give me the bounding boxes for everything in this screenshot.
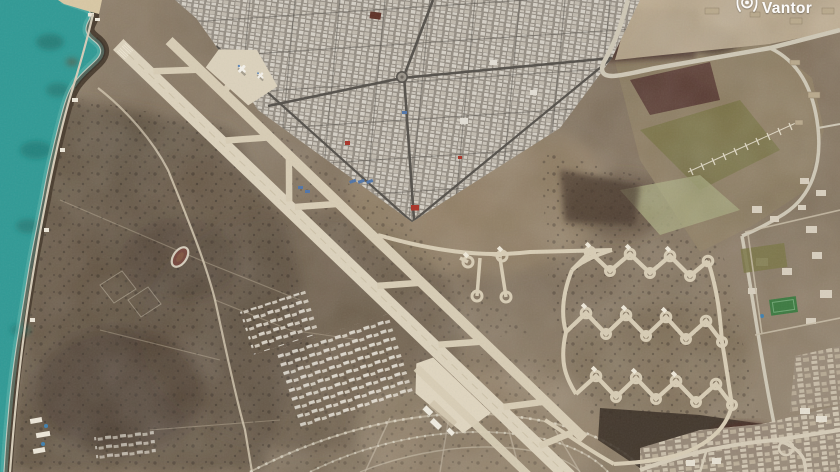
photo-grain-light	[0, 0, 840, 472]
satellite-image: Vantor	[0, 0, 840, 472]
vantor-wordmark: Vantor	[762, 0, 812, 17]
